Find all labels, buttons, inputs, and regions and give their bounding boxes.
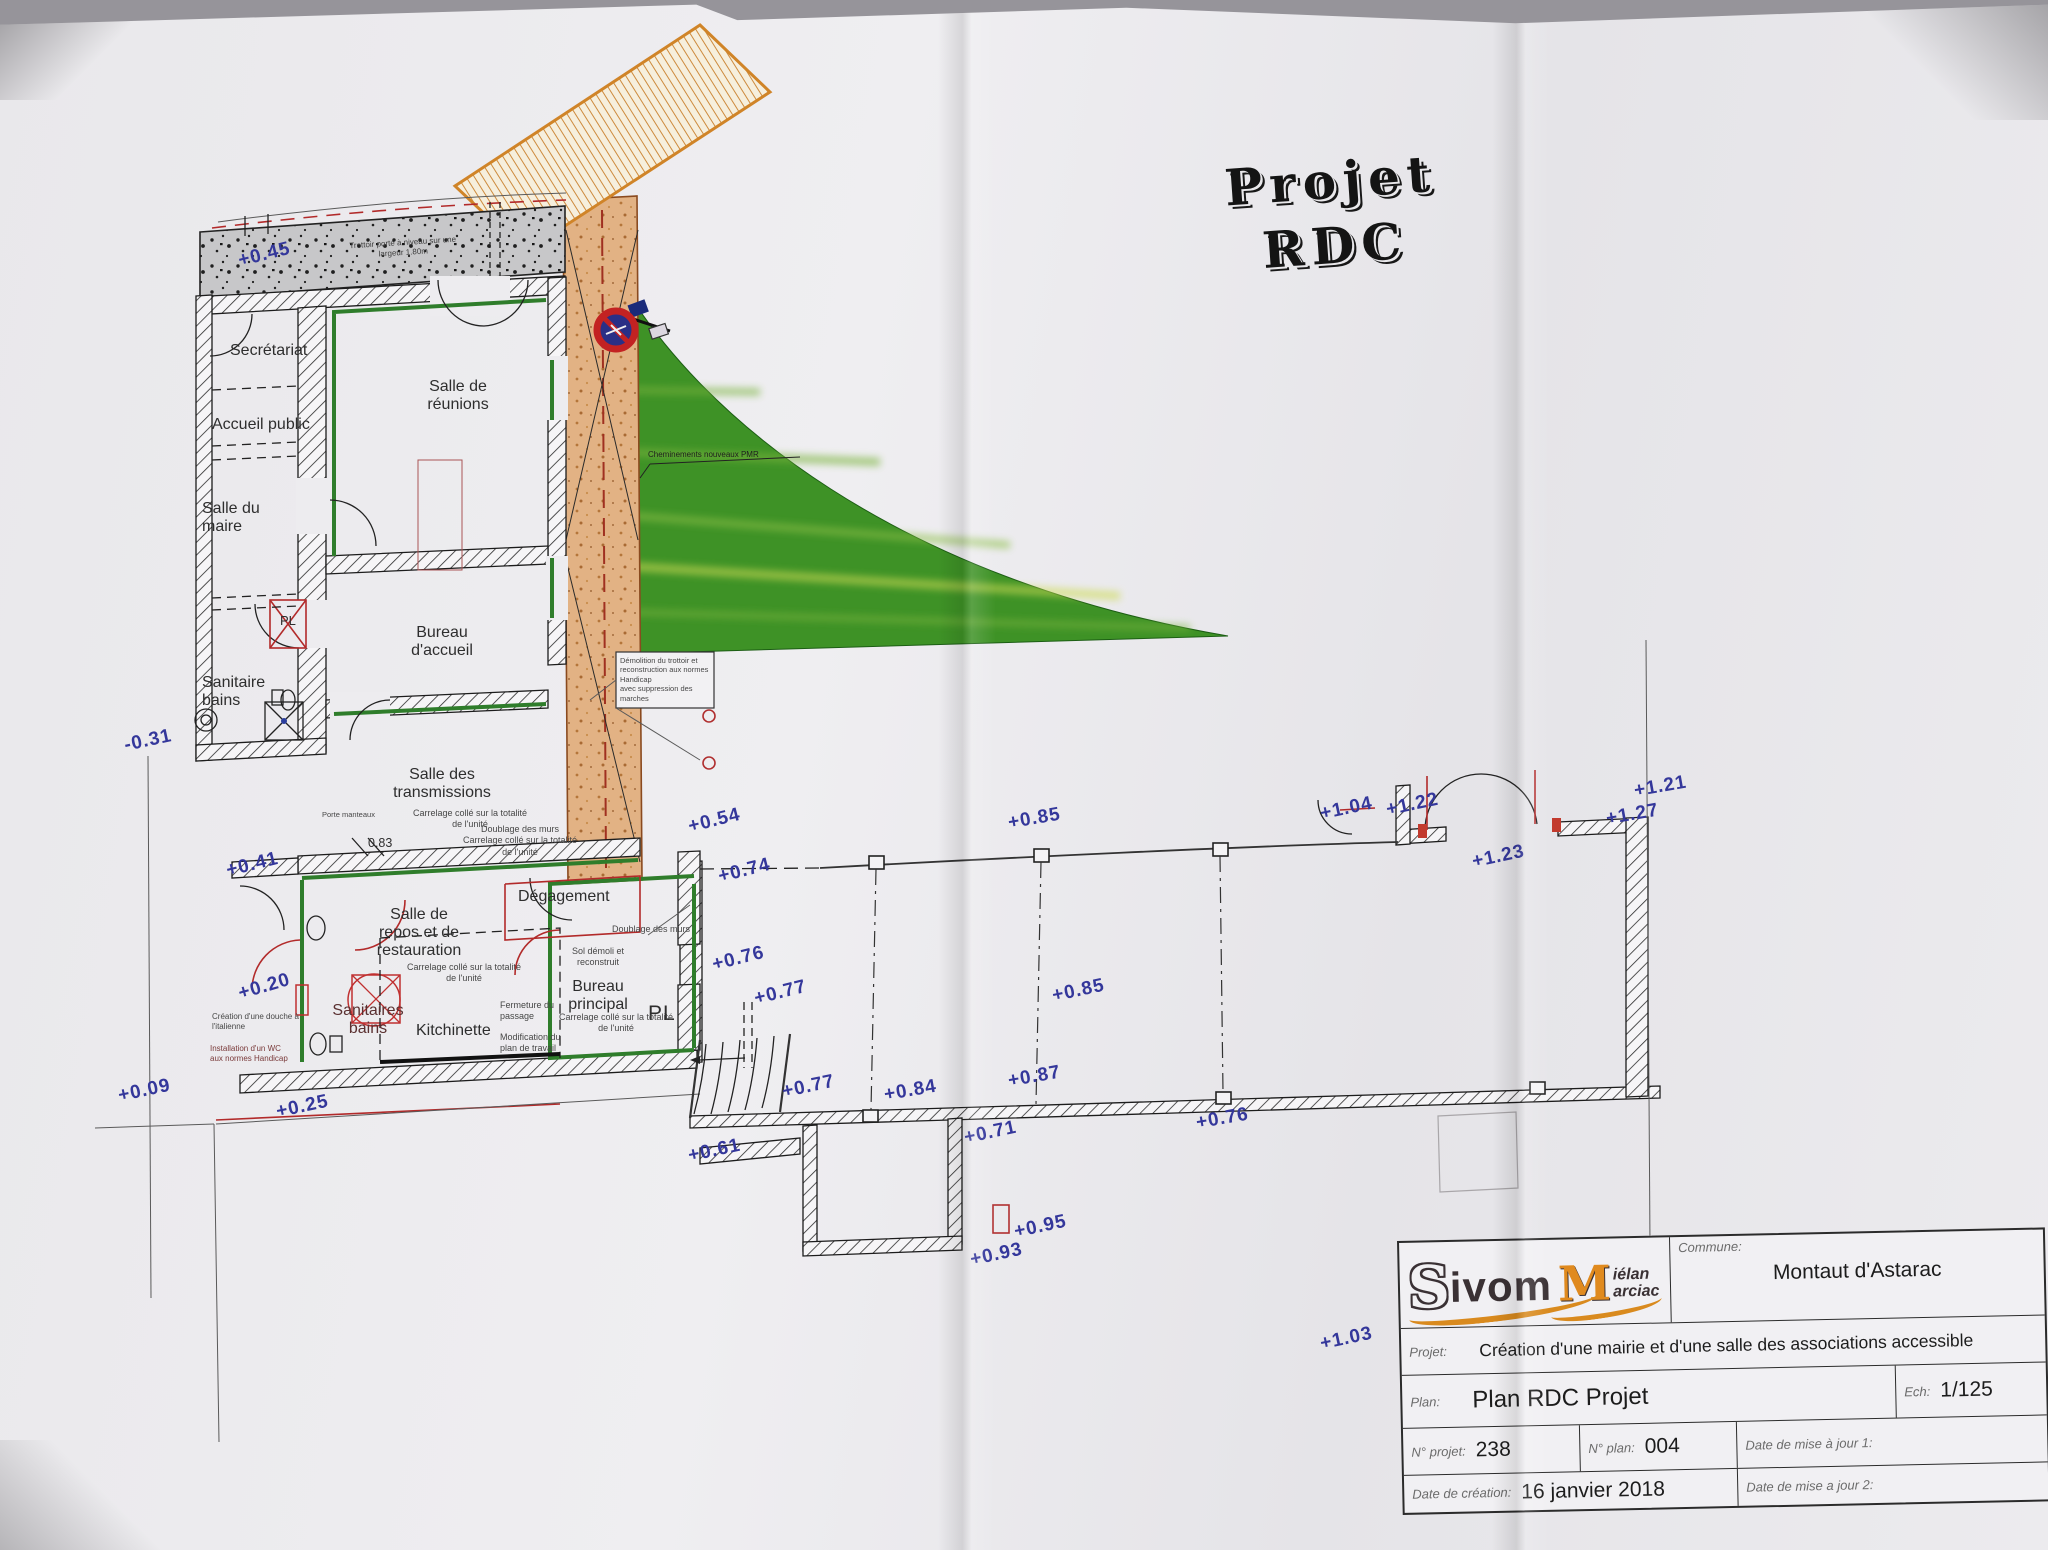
hall-structure <box>700 842 1545 1192</box>
commune-label: Commune: <box>1678 1233 2035 1255</box>
room-label-accueil-public: Accueil public <box>212 416 310 434</box>
annotation-carrelage-repos: Carrelage collé sur la totalité de l'uni… <box>398 962 530 985</box>
room-label-kitchinette: Kitchinette <box>416 1022 491 1040</box>
plan-value: Plan RDC Projet <box>1472 1383 1649 1415</box>
creation-value: 16 janvier 2018 <box>1521 1477 1665 1504</box>
ech-value: 1/125 <box>1940 1378 1993 1403</box>
room-label-salle-des-transmissions: Salle des transmissions <box>382 766 502 802</box>
logo-mielan: iélan <box>1613 1266 1660 1284</box>
room-label-salle-de-repos: Salle de repos et de restauration <box>358 906 480 960</box>
annotation-wc-handicap: Installation d'un WC aux normes Handicap <box>210 1044 318 1064</box>
existing-stone-wall <box>563 196 642 884</box>
maj1-label: Date de mise à jour 1: <box>1737 1415 2048 1467</box>
annotation-fermeture-passage: Fermeture du passage <box>500 1000 572 1023</box>
room-label-salle-de-reunions: Salle de réunions <box>403 378 513 414</box>
commune-value: Montaut d'Astarac <box>1679 1256 2036 1287</box>
room-label-sanitaires-bains: Sanitaires bains <box>326 1002 410 1038</box>
annotation-demolition-trottoir: Démolition du trottoir et reconstruction… <box>620 656 712 703</box>
room-label-placard-small: PL <box>280 614 296 629</box>
plan-sheet: Projet RDC Secrétariat Accueil public Sa… <box>0 0 2048 1550</box>
annotation-doublage-carrelage: Doublage des murs Carrelage collé sur la… <box>458 824 582 858</box>
room-label-secretariat: Secrétariat <box>230 342 307 360</box>
plan-label: Plan: <box>1410 1393 1472 1409</box>
room-label-bureau-accueil: Bureau d'accueil <box>392 624 492 660</box>
ech-label: Ech: <box>1904 1383 1930 1399</box>
annotation-porte-manteaux: Porte manteaux <box>322 810 375 819</box>
num-plan-value: 004 <box>1645 1434 1681 1459</box>
annotation-cheminements-pmr: Cheminements nouveaux PMR <box>648 450 808 460</box>
num-plan-label: N° plan: <box>1588 1440 1635 1456</box>
annotation-modification-plan: Modification du plan de travail <box>500 1032 584 1055</box>
projet-value: Création d'une mairie et d'une salle des… <box>1471 1325 2045 1364</box>
dimension-door-width: 0.83 <box>368 836 392 850</box>
page-title: Projet RDC <box>1164 137 1502 290</box>
annotation-douche-italienne: Création d'une douche à l'italienne <box>212 1012 324 1032</box>
num-projet-value: 238 <box>1475 1438 1511 1463</box>
exterior-stairs <box>690 1034 790 1118</box>
projet-label: Projet: <box>1401 1340 1471 1362</box>
lawn-area <box>618 276 1228 654</box>
room-label-sanitaire-bains: Sanitaire bains <box>202 674 265 710</box>
sivom-logo: S ivom M iélan arciac <box>1399 1237 1672 1328</box>
num-projet-label: N° projet: <box>1411 1443 1466 1459</box>
room-label-salle-du-maire: Salle du maire <box>202 500 260 536</box>
annotation-doublage-murs: Doublage des murs <box>612 924 690 935</box>
title-block: S ivom M iélan arciac Commune: Montaut d… <box>1397 1227 2048 1515</box>
maj2-label: Date de mise a jour 2: <box>1738 1462 2048 1505</box>
creation-label: Date de création: <box>1412 1485 1511 1502</box>
annotation-sol-demoli: Sol démoli et reconstruit <box>552 946 644 969</box>
room-label-degagement: Dégagement <box>518 888 610 906</box>
